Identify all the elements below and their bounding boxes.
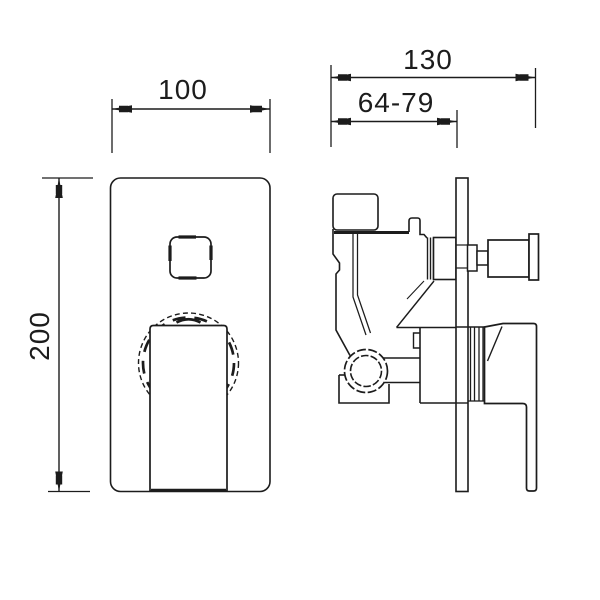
valve-body-inner-lines: [353, 234, 371, 335]
cartridge-cylinder: [434, 238, 457, 280]
front-handle-lever: [150, 326, 227, 492]
side-diverter-knob: [468, 234, 539, 280]
dimension-width-label: 100: [158, 74, 208, 105]
shower-mixer-dimension-drawing: 100 200 130 64-79: [0, 0, 600, 600]
valve-body-left-profile: [333, 229, 350, 356]
valve-body-top-block: [333, 194, 378, 230]
technical-drawing-canvas: 100 200 130 64-79: [0, 0, 600, 600]
valve-body-top-stub: [409, 218, 427, 238]
dimension-height-label: 200: [24, 311, 55, 361]
cartridge-rings: [428, 238, 434, 280]
dimension-recess-depth-range: 64-79: [331, 87, 457, 148]
cartridge-slope-lines: [397, 281, 435, 328]
dimension-front-width: 100: [112, 74, 270, 153]
front-view: [111, 178, 271, 492]
side-view: [333, 178, 539, 492]
dimension-depth-label: 130: [403, 44, 453, 75]
dimension-depth-range-label: 64-79: [358, 87, 435, 118]
dimension-front-height: 200: [24, 178, 93, 492]
side-wall-plate: [456, 178, 468, 492]
side-handle-hub-rings: [468, 327, 484, 401]
front-diverter-button: [170, 237, 211, 278]
